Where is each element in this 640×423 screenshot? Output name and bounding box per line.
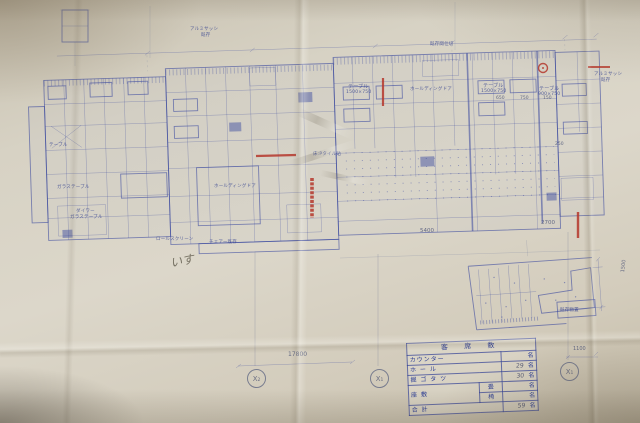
seat-count-table: 客 席 数カウンター名ホ ー ル29名掘 ゴ タ ツ30名座 敷畳名椅名合 計5…	[406, 338, 539, 416]
plan-labels-layer: アルミサッシ既存既存間仕切アルミサッシ既存テーブル1500×750テーブル150…	[0, 0, 640, 423]
seat-count-unit: 名	[527, 352, 533, 359]
plan-label: テーブル	[539, 85, 560, 92]
dimension-label: 650	[496, 96, 505, 101]
plan-label: 既存物置	[560, 307, 579, 313]
plan-label: テーブル	[49, 142, 68, 148]
axis-marker: X₁	[370, 369, 389, 388]
dimension-label: 1100	[573, 346, 586, 352]
plan-label: テーブル	[483, 82, 504, 89]
seat-count-number: 30	[516, 371, 524, 380]
plan-label: チェアー既存	[209, 239, 237, 245]
seat-table-value: 59名	[503, 400, 538, 411]
plan-label: テーブル	[348, 83, 369, 90]
dimension-label: 17800	[288, 351, 307, 358]
dimension-label: 750	[520, 96, 529, 101]
plan-label: 既存	[201, 32, 210, 38]
plan-label: 既存間仕切	[430, 41, 454, 47]
seat-count-number: 59	[518, 401, 526, 410]
seat-count-unit: 名	[528, 362, 534, 369]
dimension-label: 5400	[420, 228, 434, 234]
dimension-label: 150	[543, 96, 552, 101]
dimension-label: 1500	[620, 259, 628, 272]
plan-label: ガラステーブル	[70, 214, 103, 220]
dimension-label: 250	[555, 142, 564, 147]
blueprint-photo: アルミサッシ既存既存間仕切アルミサッシ既存テーブル1500×750テーブル150…	[0, 0, 640, 423]
seat-count-unit: 名	[528, 372, 534, 379]
seat-count-number: 29	[516, 361, 524, 370]
axis-marker: X₁	[560, 362, 579, 381]
plan-label: 1500×750	[481, 89, 506, 94]
axis-marker: X₂	[247, 369, 266, 388]
seat-count-unit: 名	[529, 382, 535, 389]
plan-label: ロールスクリーン	[156, 236, 193, 242]
plan-label: ホールディングドア	[410, 86, 452, 92]
plan-label: ホールディングドア	[214, 183, 256, 189]
plan-label: 既存	[601, 77, 610, 83]
plan-label: 1500×750	[346, 90, 371, 95]
seat-count-unit: 名	[529, 392, 535, 399]
plan-label: ガラステーブル	[57, 184, 90, 190]
seat-count-unit: 名	[529, 402, 535, 409]
dimension-label: 2700	[541, 220, 555, 226]
